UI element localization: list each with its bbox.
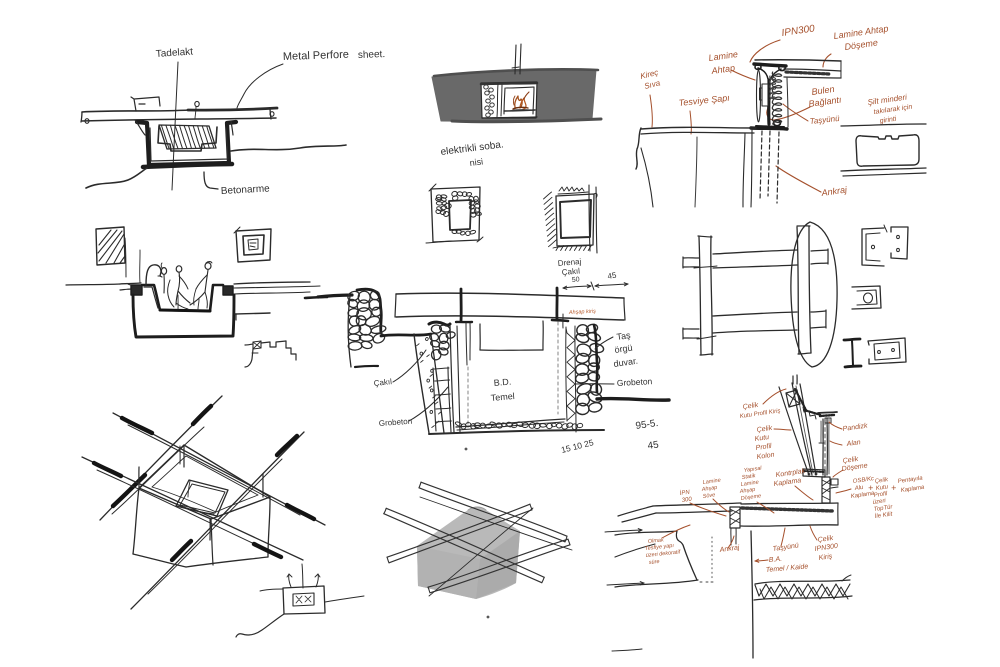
svg-text:+: + xyxy=(868,483,873,493)
svg-text:İPN: İPN xyxy=(679,489,691,497)
svg-text:+: + xyxy=(891,483,896,493)
svg-text:B.D.: B.D. xyxy=(493,377,511,388)
svg-text:sheet.: sheet. xyxy=(358,49,386,61)
svg-text:Temel: Temel xyxy=(490,391,515,403)
svg-text:Taş: Taş xyxy=(616,330,632,342)
svg-text:B.A.: B.A. xyxy=(769,556,783,564)
svg-text:Grobeton: Grobeton xyxy=(617,376,653,388)
svg-text:Çakıl: Çakıl xyxy=(561,266,580,277)
svg-text:süre: süre xyxy=(649,559,660,566)
svg-text:Metal Perfore: Metal Perfore xyxy=(283,49,349,63)
svg-text:50: 50 xyxy=(572,276,580,284)
svg-text:nisi: nisi xyxy=(469,156,484,168)
svg-text:Çakıl: Çakıl xyxy=(373,377,392,388)
svg-text:45: 45 xyxy=(647,439,660,452)
